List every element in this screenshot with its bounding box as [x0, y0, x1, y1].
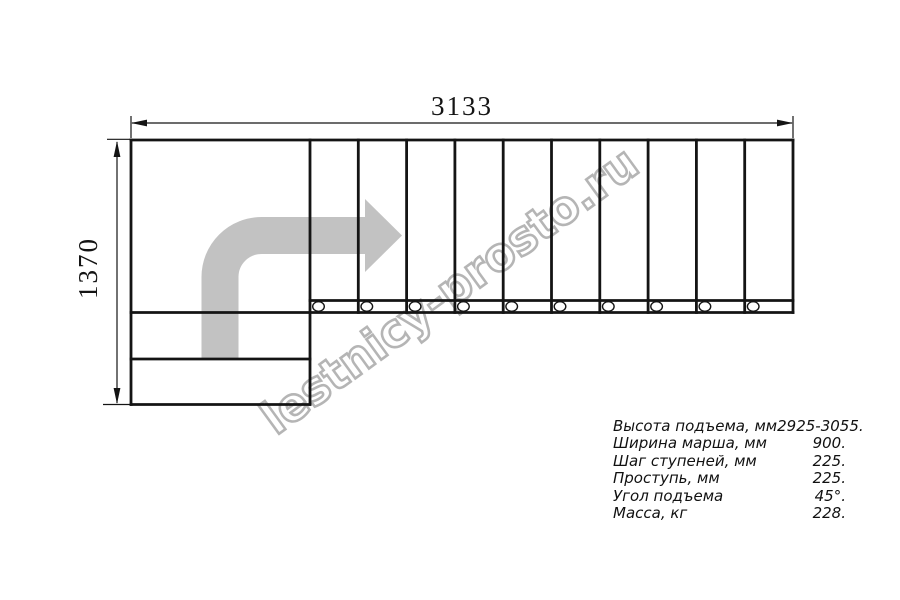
- bolt-circle: [747, 302, 759, 312]
- bolt-circle: [361, 302, 373, 312]
- specs-table: Высота подъема, мм 2925-3055. Ширина мар…: [613, 418, 846, 522]
- staircase-plan-page: lestnicy-prosto.ru 3133: [0, 0, 900, 600]
- height-dimension: 1370: [73, 139, 130, 404]
- bolt-circle: [554, 302, 566, 312]
- spec-row: Высота подъема, мм 2925-3055.: [613, 418, 846, 435]
- spec-value: 225.: [813, 470, 846, 487]
- spec-label: Шаг ступеней, мм: [613, 453, 757, 470]
- bolt-circle: [603, 302, 615, 312]
- bolt-circle: [409, 302, 421, 312]
- spec-label: Масса, кг: [613, 505, 687, 522]
- spec-value: 2925-3055.: [777, 418, 864, 435]
- spec-row: Угол подъема 45°.: [613, 488, 846, 505]
- dim-arrow-right-icon: [777, 120, 793, 127]
- spec-value: 228.: [813, 505, 846, 522]
- spec-label: Проступь, мм: [613, 470, 720, 487]
- bolt-circle: [651, 302, 663, 312]
- spec-row: Ширина марша, мм 900.: [613, 435, 846, 452]
- flow-arrow-head: [365, 199, 402, 272]
- bolt-circle: [458, 302, 470, 312]
- spec-label: Высота подъема, мм: [613, 418, 777, 435]
- spec-value: 900.: [813, 435, 846, 452]
- dim-arrow-down-icon: [114, 388, 121, 404]
- bolt-circle: [506, 302, 518, 312]
- spec-row: Шаг ступеней, мм 225.: [613, 453, 846, 470]
- width-dimension-label: 3133: [431, 91, 493, 121]
- spec-label: Угол подъема: [613, 488, 723, 505]
- spec-value: 225.: [813, 453, 846, 470]
- bolt-circle: [699, 302, 711, 312]
- width-dimension: 3133: [131, 91, 793, 138]
- spec-row: Проступь, мм 225.: [613, 470, 846, 487]
- bolt-circle: [313, 302, 325, 312]
- spec-label: Ширина марша, мм: [613, 435, 767, 452]
- height-dimension-label: 1370: [73, 237, 103, 299]
- spec-row: Масса, кг 228.: [613, 505, 846, 522]
- dim-arrow-up-icon: [114, 141, 121, 157]
- dim-arrow-left-icon: [131, 120, 147, 127]
- spec-value: 45°.: [815, 488, 846, 505]
